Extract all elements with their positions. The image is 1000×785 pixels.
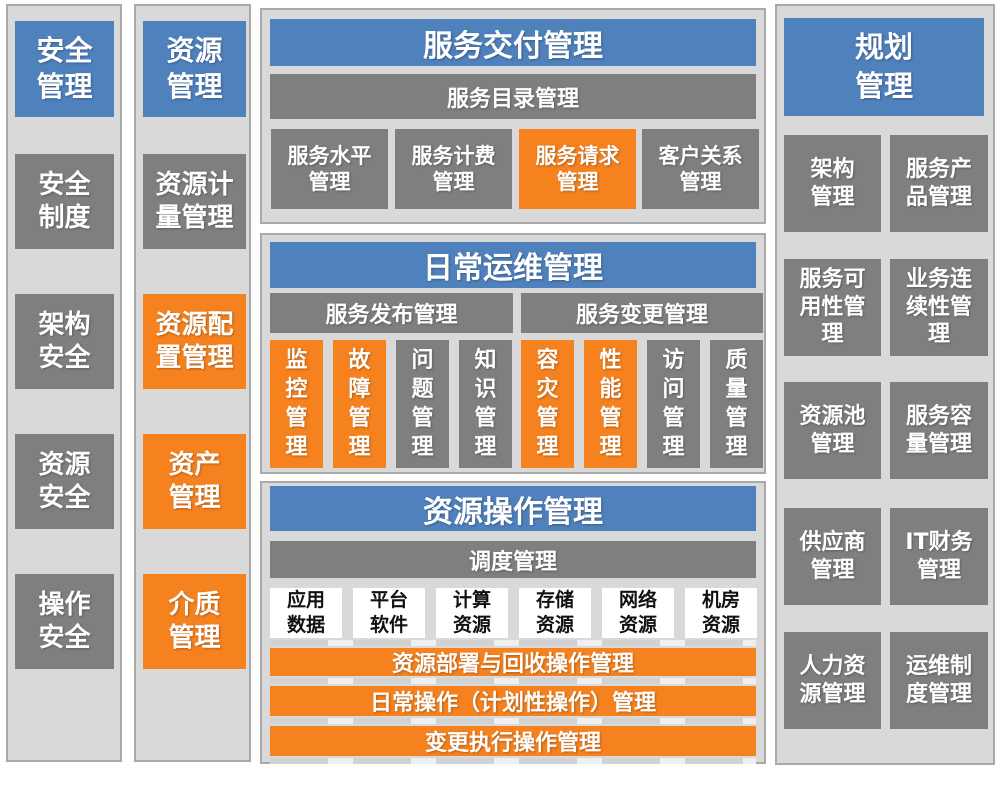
architecture-security-box: 架构 安全 — [15, 294, 114, 389]
resource-operations-panel: 资源操作管理 调度管理 应用 数据 平台 软件 计算 资源 存储 资源 网络 资… — [260, 481, 766, 764]
human-resource-box: 人力资 源管理 — [784, 632, 881, 729]
security-column-header: 安全 管理 — [15, 21, 114, 117]
security-column: 安全 管理 安全 制度 架构 安全 资源 安全 操作 安全 — [6, 4, 122, 762]
disaster-recovery-box: 容 灾 管 理 — [521, 340, 574, 468]
resource-operations-header: 资源操作管理 — [270, 486, 756, 531]
datacenter-resource-box: 机房 资源 — [685, 588, 757, 638]
service-product-box: 服务产 品管理 — [890, 135, 988, 232]
resource-pool-box: 资源池 管理 — [784, 382, 881, 479]
itom-framework-diagram: 安全 管理 安全 制度 架构 安全 资源 安全 操作 安全 资源 管理 资源计 … — [0, 0, 1000, 785]
daily-operations-panel: 日常运维管理 服务发布管理 服务变更管理 监 控 管 理 故 障 管 理 问 题… — [260, 233, 766, 474]
business-continuity-box: 业务连 续性管 理 — [890, 259, 988, 356]
monitoring-box: 监 控 管 理 — [270, 340, 323, 468]
compute-resource-box: 计算 资源 — [436, 588, 508, 638]
service-availability-box: 服务可 用性管 理 — [784, 259, 881, 356]
service-level-box: 服务水平 管理 — [271, 129, 388, 209]
service-capacity-box: 服务容 量管理 — [890, 382, 988, 479]
change-execution-ops-bar: 变更执行操作管理 — [270, 726, 756, 756]
platform-software-box: 平台 软件 — [353, 588, 425, 638]
storage-resource-box: 存储 资源 — [519, 588, 591, 638]
media-management-box: 介质 管理 — [143, 574, 246, 669]
service-request-box: 服务请求 管理 — [519, 129, 636, 209]
column-gap-marks — [270, 678, 756, 684]
customer-relationship-box: 客户关系 管理 — [642, 129, 759, 209]
architecture-mgmt-box: 架构 管理 — [784, 135, 881, 232]
performance-box: 性 能 管 理 — [584, 340, 637, 468]
service-change-bar: 服务变更管理 — [521, 293, 763, 333]
app-data-box: 应用 数据 — [270, 588, 342, 638]
problem-box: 问 题 管 理 — [396, 340, 449, 468]
daily-planned-ops-bar: 日常操作（计划性操作）管理 — [270, 686, 756, 716]
dispatch-bar: 调度管理 — [270, 541, 756, 578]
service-billing-box: 服务计费 管理 — [395, 129, 512, 209]
daily-operations-header: 日常运维管理 — [270, 242, 756, 288]
network-resource-box: 网络 资源 — [602, 588, 674, 638]
asset-management-box: 资产 管理 — [143, 434, 246, 529]
column-gap-marks — [270, 718, 756, 724]
resource-security-box: 资源 安全 — [15, 434, 114, 529]
planning-column-header: 规划 管理 — [784, 18, 984, 116]
operation-security-box: 操作 安全 — [15, 574, 114, 669]
quality-box: 质 量 管 理 — [710, 340, 763, 468]
it-finance-box: IT财务 管理 — [890, 508, 988, 605]
security-rules-box: 安全 制度 — [15, 154, 114, 249]
resource-column: 资源 管理 资源计 量管理 资源配 置管理 资产 管理 介质 管理 — [134, 4, 251, 762]
supplier-mgmt-box: 供应商 管理 — [784, 508, 881, 605]
resource-metering-box: 资源计 量管理 — [143, 154, 246, 249]
column-gap-marks — [270, 758, 756, 764]
planning-column: 规划 管理 架构 管理 服务产 品管理 服务可 用性管 理 业务连 续性管 理 … — [775, 4, 995, 765]
resource-column-header: 资源 管理 — [143, 21, 246, 117]
service-release-bar: 服务发布管理 — [270, 293, 513, 333]
resource-configuration-box: 资源配 置管理 — [143, 294, 246, 389]
incident-box: 故 障 管 理 — [333, 340, 386, 468]
ops-policy-box: 运维制 度管理 — [890, 632, 988, 729]
access-box: 访 问 管 理 — [647, 340, 700, 468]
knowledge-box: 知 识 管 理 — [459, 340, 512, 468]
deploy-reclaim-ops-bar: 资源部署与回收操作管理 — [270, 648, 756, 676]
service-delivery-header: 服务交付管理 — [270, 19, 756, 66]
service-catalog-bar: 服务目录管理 — [270, 74, 756, 119]
service-delivery-panel: 服务交付管理 服务目录管理 服务水平 管理 服务计费 管理 服务请求 管理 客户… — [260, 8, 766, 224]
